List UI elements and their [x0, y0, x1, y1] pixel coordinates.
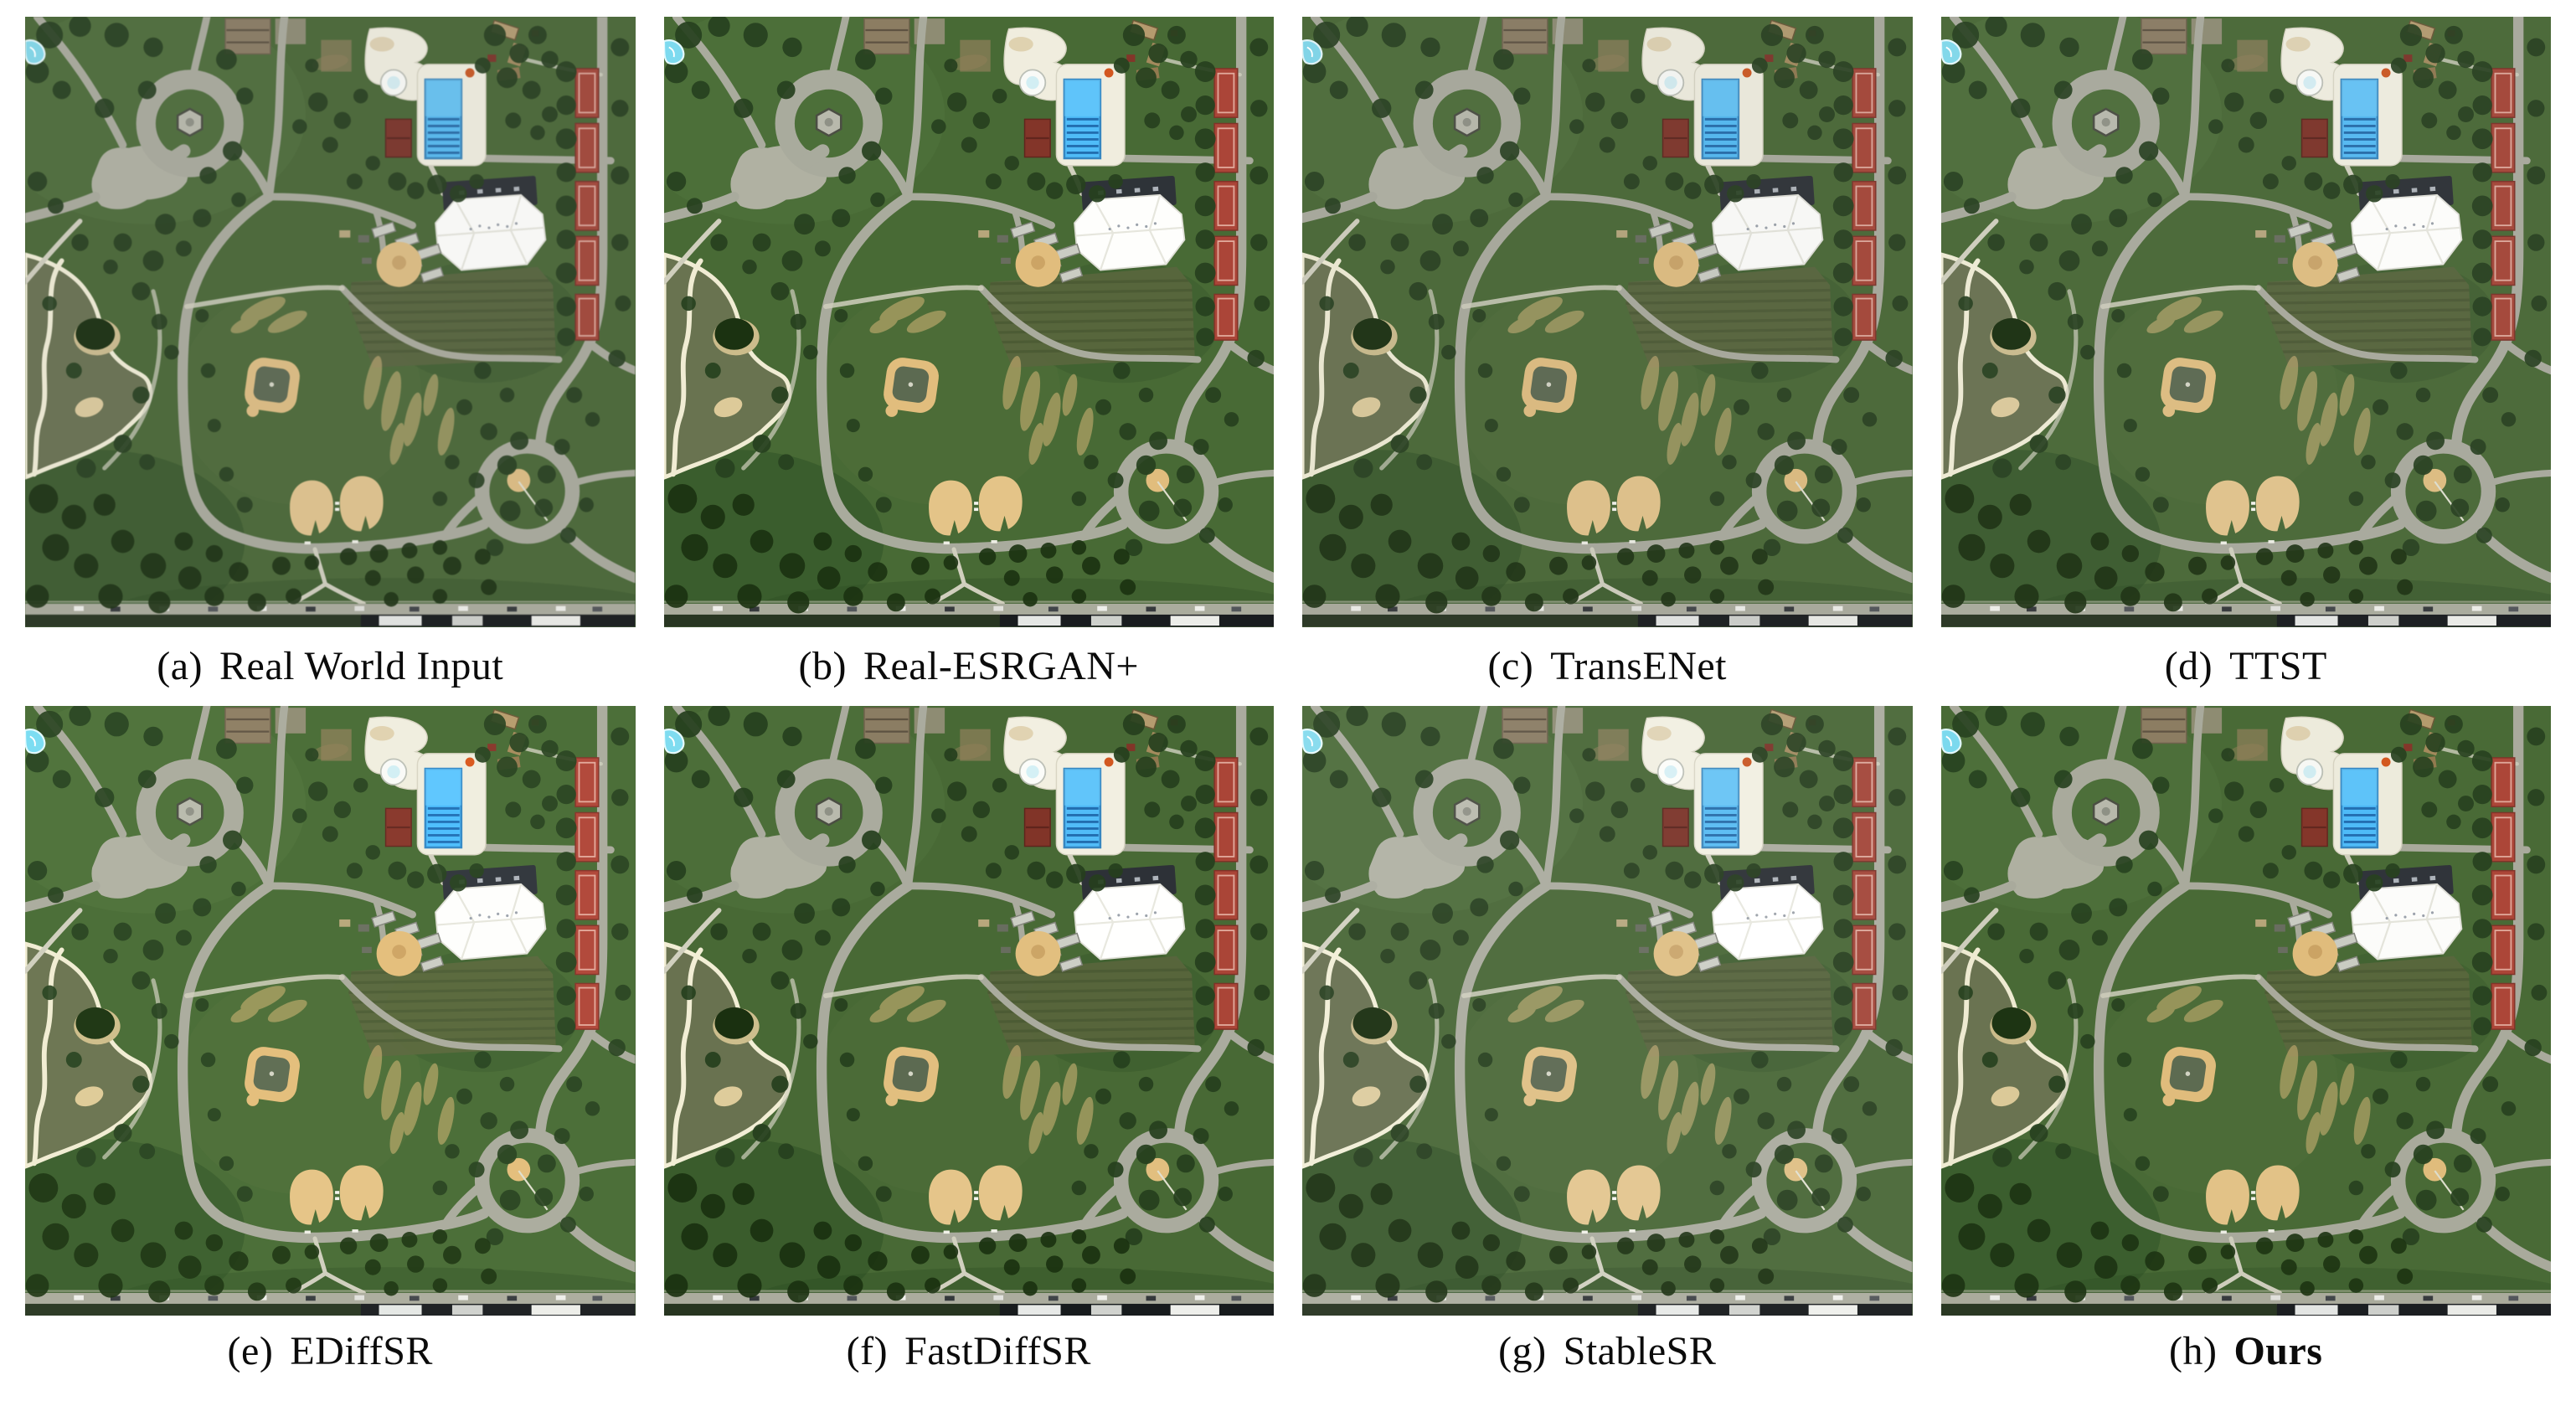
satellite-image-ours	[1941, 706, 2552, 1316]
panel-d: (d) TTST	[1941, 17, 2552, 706]
panel-label: (a)	[157, 643, 203, 689]
caption-d: (d) TTST	[1941, 627, 2552, 706]
caption-e: (e) EDiffSR	[25, 1316, 636, 1386]
caption-g: (g) StableSR	[1302, 1316, 1913, 1386]
caption-a: (a) Real World Input	[25, 627, 636, 706]
panel-b: (b) Real-ESRGAN+	[664, 17, 1275, 706]
panel-e: (e) EDiffSR	[25, 706, 636, 1387]
method-name: FastDiffSR	[904, 1328, 1091, 1374]
comparison-figure-grid: (a) Real World Input (b) Real-ESRGAN+ (c…	[0, 0, 2576, 1386]
panel-label: (d)	[2165, 643, 2213, 689]
method-name: Real-ESRGAN+	[863, 643, 1139, 689]
panel-label: (g)	[1498, 1328, 1546, 1374]
panel-label: (b)	[798, 643, 846, 689]
panel-c: (c) TransENet	[1302, 17, 1913, 706]
satellite-image-real-esrgan	[664, 17, 1275, 627]
panel-f: (f) FastDiffSR	[664, 706, 1275, 1387]
panel-g: (g) StableSR	[1302, 706, 1913, 1387]
panel-label: (f)	[847, 1328, 888, 1374]
method-name: Ours	[2233, 1328, 2322, 1374]
satellite-image-transenet	[1302, 17, 1913, 627]
method-name: StableSR	[1564, 1328, 1717, 1374]
panel-label: (h)	[2169, 1328, 2217, 1374]
panel-h: (h) Ours	[1941, 706, 2552, 1387]
caption-f: (f) FastDiffSR	[664, 1316, 1275, 1386]
method-name: TransENet	[1550, 643, 1727, 689]
caption-b: (b) Real-ESRGAN+	[664, 627, 1275, 706]
satellite-image-fastdiffsr	[664, 706, 1275, 1316]
method-name: TTST	[2229, 643, 2327, 689]
panel-label: (c)	[1487, 643, 1533, 689]
method-name: Real World Input	[219, 643, 503, 689]
satellite-image-real-world-input	[25, 17, 636, 627]
panel-a: (a) Real World Input	[25, 17, 636, 706]
method-name: EDiffSR	[290, 1328, 433, 1374]
caption-h: (h) Ours	[1941, 1316, 2552, 1386]
caption-c: (c) TransENet	[1302, 627, 1913, 706]
satellite-image-ediffsr	[25, 706, 636, 1316]
satellite-image-stablesr	[1302, 706, 1913, 1316]
panel-label: (e)	[228, 1328, 274, 1374]
satellite-image-ttst	[1941, 17, 2552, 627]
